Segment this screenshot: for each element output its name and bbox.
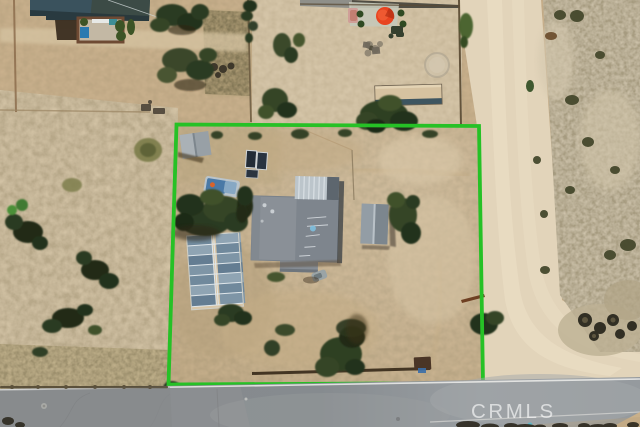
svg-text:CRMLS: CRMLS [471, 400, 556, 423]
